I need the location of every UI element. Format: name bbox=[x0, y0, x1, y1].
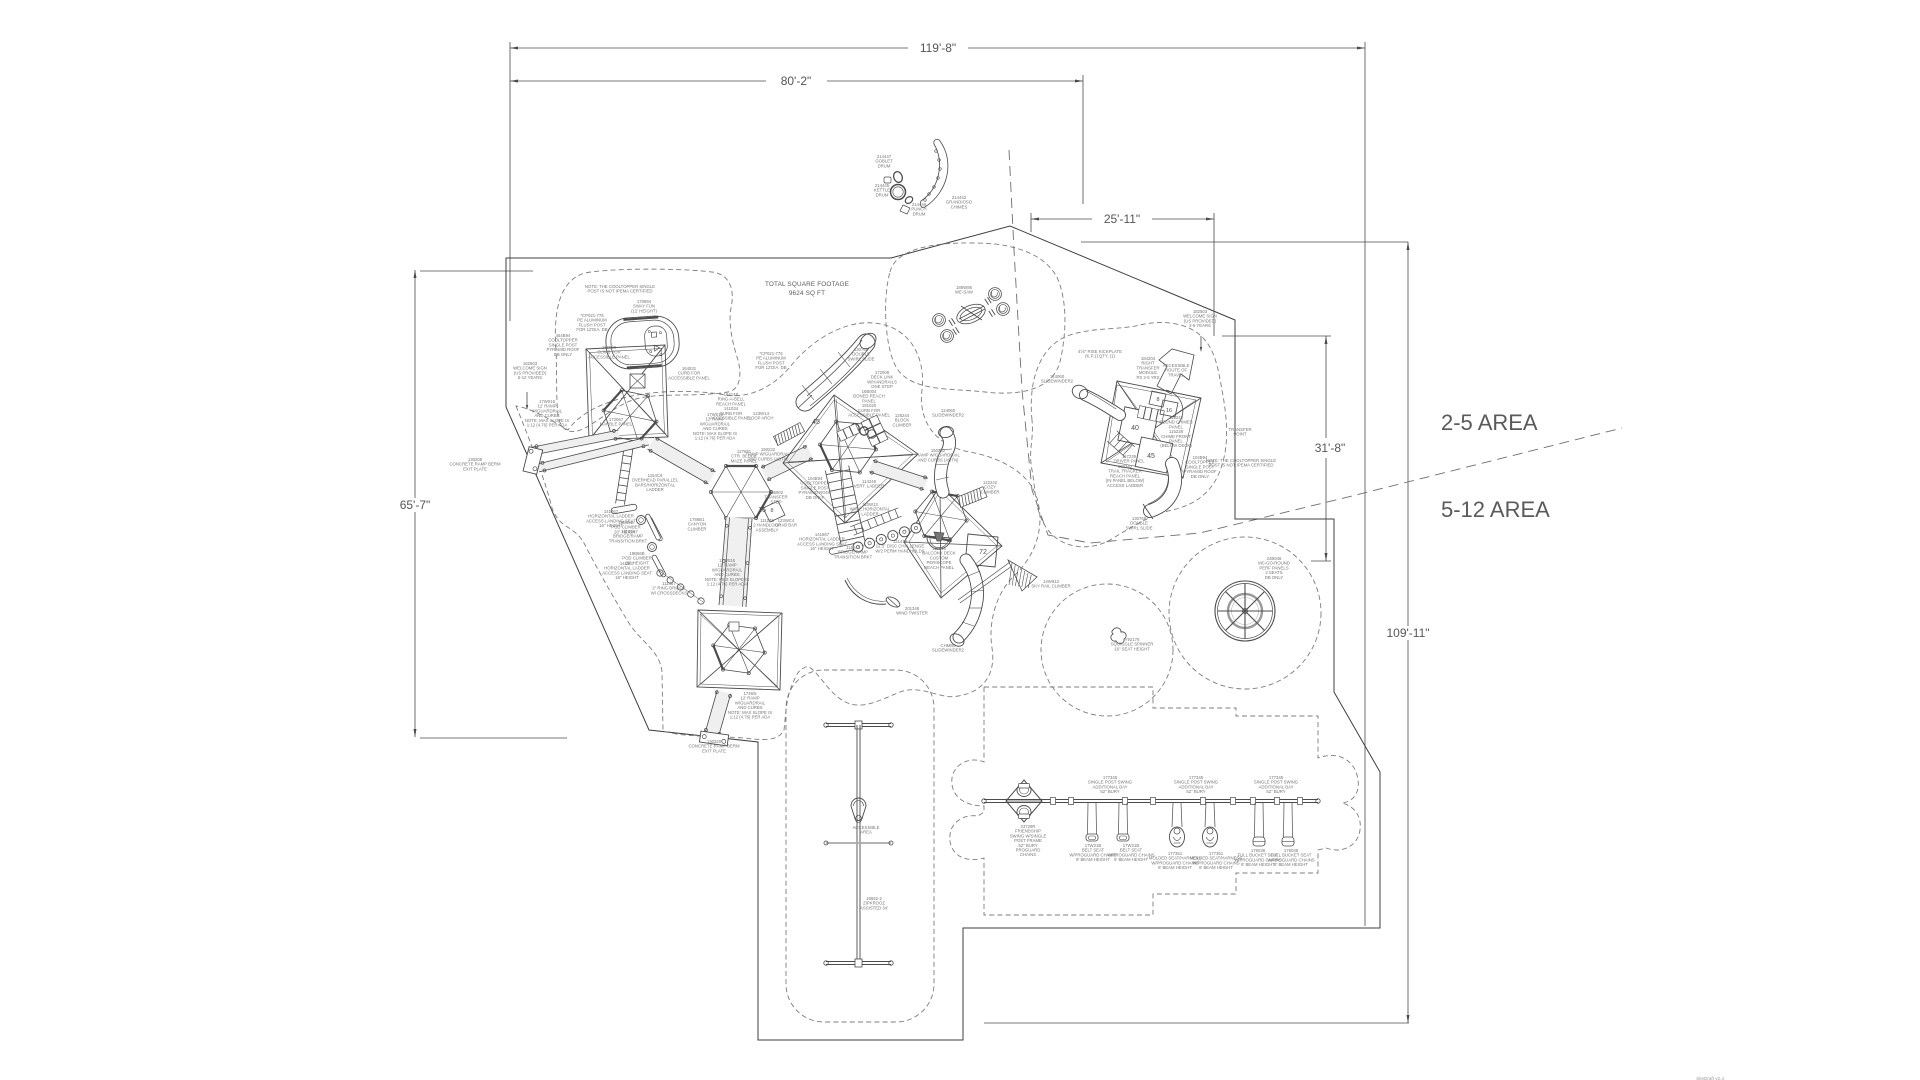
svg-text:2-5 AREA: 2-5 AREA bbox=[1441, 410, 1538, 435]
svg-text:5-12 AREA: 5-12 AREA bbox=[1441, 497, 1550, 522]
svg-text:8: 8 bbox=[770, 508, 773, 514]
svg-text:TOTAL SQUARE FOOTAGE: TOTAL SQUARE FOOTAGE bbox=[765, 281, 849, 288]
svg-text:8: 8 bbox=[1156, 397, 1159, 403]
svg-text:214445KETTLEDRUM: 214445KETTLEDRUM bbox=[874, 183, 890, 197]
svg-text:NOTE: THE COOLTOPPER SINGLEPOS: NOTE: THE COOLTOPPER SINGLEPOST IS NOT I… bbox=[585, 284, 655, 294]
svg-text:214447GOBLETDRUM: 214447GOBLETDRUM bbox=[875, 154, 893, 168]
svg-text:25'-11": 25'-11" bbox=[1104, 212, 1140, 226]
svg-text:16: 16 bbox=[758, 507, 766, 514]
svg-text:72: 72 bbox=[979, 549, 987, 556]
svg-text:16: 16 bbox=[1166, 408, 1172, 414]
svg-text:40: 40 bbox=[1131, 425, 1139, 432]
svg-text:45: 45 bbox=[812, 419, 820, 426]
svg-text:1786B1CANYONCLIMBER: 1786B1CANYONCLIMBER bbox=[687, 517, 706, 531]
svg-text:65'-7": 65'-7" bbox=[400, 498, 431, 512]
svg-text:109'-11": 109'-11" bbox=[1386, 626, 1429, 640]
svg-text:NOTE: THE COOLTOPPER SINGLEPOS: NOTE: THE COOLTOPPER SINGLEPOST IS NOT I… bbox=[1206, 458, 1276, 468]
svg-text:*CP021-776PE ALUMINUMFLUSH POS: *CP021-776PE ALUMINUMFLUSH POSTFOR 12'DI… bbox=[576, 313, 607, 332]
svg-text:9624 SQ FT: 9624 SQ FT bbox=[789, 290, 825, 297]
svg-text:45: 45 bbox=[1147, 453, 1155, 460]
svg-text:214446PUNCHDRUM: 214446PUNCHDRUM bbox=[911, 202, 926, 216]
svg-text:SiteDraft v2.4: SiteDraft v2.4 bbox=[1696, 1076, 1724, 1080]
svg-text:123WC4GRAB BAR: 123WC4GRAB BAR bbox=[775, 518, 797, 528]
svg-text:80'-2": 80'-2" bbox=[781, 74, 812, 88]
svg-text:*CP021-776PE ALUMINUMFLUSH POS: *CP021-776PE ALUMINUMFLUSH POSTFOR 12'DI… bbox=[755, 351, 786, 370]
svg-text:186W86WE-SAW: 186W86WE-SAW bbox=[955, 285, 974, 295]
svg-text:119'-8": 119'-8" bbox=[920, 41, 956, 55]
svg-text:128244BLOCKCLIMBER: 128244BLOCKCLIMBER bbox=[892, 413, 911, 427]
svg-text:31'-8": 31'-8" bbox=[1315, 441, 1346, 455]
